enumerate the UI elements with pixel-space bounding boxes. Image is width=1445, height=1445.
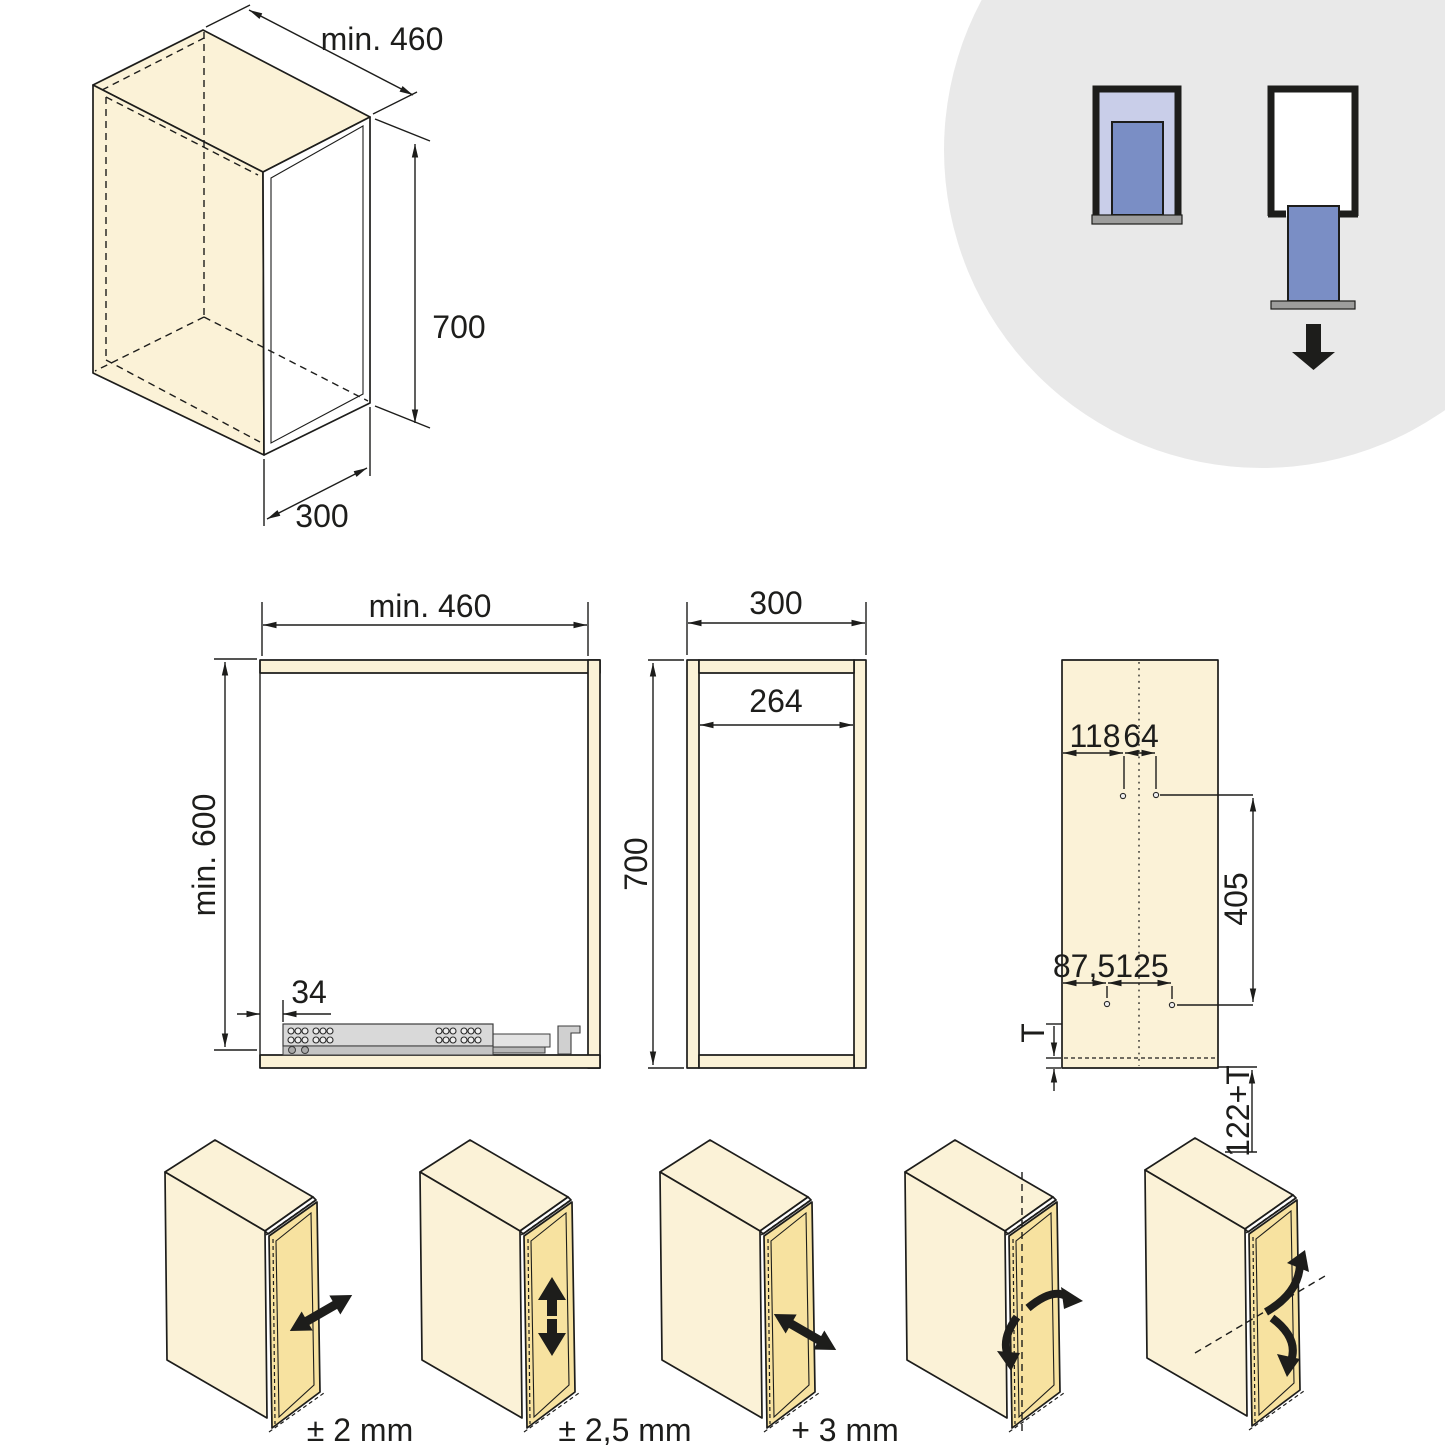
clearance-circle-illustration xyxy=(944,0,1445,468)
front-height-dimension-label: min. 600 xyxy=(186,794,222,917)
adjustment-cabinet-rotation xyxy=(1145,1138,1325,1430)
panel-bottom-gap-label: 125 xyxy=(1115,948,1168,984)
adjustment-cabinet-height: ± 2,5 mm xyxy=(420,1140,692,1445)
drilling-panel-view: 118 64 87,5 125 405 T 122+T xyxy=(1015,660,1257,1157)
lateral-adjustment-label: + 3 mm xyxy=(791,1412,899,1445)
iso-cabinet-view: min. 460 700 300 xyxy=(93,5,486,534)
panel-bottom-front-offset-label: 87,5 xyxy=(1053,948,1115,984)
cabinet-installation-diagram: min. 460 700 300 min. 460 min. 600 34 xyxy=(0,0,1445,1445)
iso-height-dimension-label: 700 xyxy=(432,309,485,345)
adjustment-cabinet-vertical-tilt xyxy=(905,1140,1083,1435)
adjustment-cabinet-depth: ± 2 mm xyxy=(165,1140,413,1445)
front-view: min. 460 min. 600 34 xyxy=(186,588,600,1068)
adjustment-cabinet-lateral: + 3 mm xyxy=(660,1140,899,1445)
height-adjustment-label: ± 2,5 mm xyxy=(558,1412,691,1445)
adjustment-row: ± 2 mm ± 2,5 mm + 3 mm xyxy=(165,1138,1325,1445)
circle-background xyxy=(944,0,1445,468)
panel-front-offset-label: 118 xyxy=(1069,718,1120,754)
side-view: 300 264 700 xyxy=(618,585,866,1068)
side-inner-width-dimension-label: 264 xyxy=(749,683,802,719)
panel-bottom-distance-label: 122+T xyxy=(1220,1065,1256,1157)
side-height-dimension-label: 700 xyxy=(618,837,654,890)
drawer-slide xyxy=(283,1024,580,1055)
panel-thickness-label: T xyxy=(1015,1023,1051,1043)
slide-end-bracket xyxy=(558,1026,580,1054)
depth-adjustment-label: ± 2 mm xyxy=(307,1412,413,1445)
panel-vertical-span-label: 405 xyxy=(1218,872,1254,925)
front-width-dimension-label: min. 460 xyxy=(369,588,492,624)
technical-drawing-page: min. 460 700 300 min. 460 min. 600 34 xyxy=(0,0,1445,1445)
slide-offset-dimension-label: 34 xyxy=(291,974,327,1010)
drawer-inset-icon xyxy=(1092,89,1182,224)
panel-hole-gap-label: 64 xyxy=(1123,718,1159,754)
iso-depth-dimension-label: min. 460 xyxy=(321,21,444,57)
side-width-dimension-label: 300 xyxy=(749,585,802,621)
iso-width-dimension-label: 300 xyxy=(295,498,348,534)
